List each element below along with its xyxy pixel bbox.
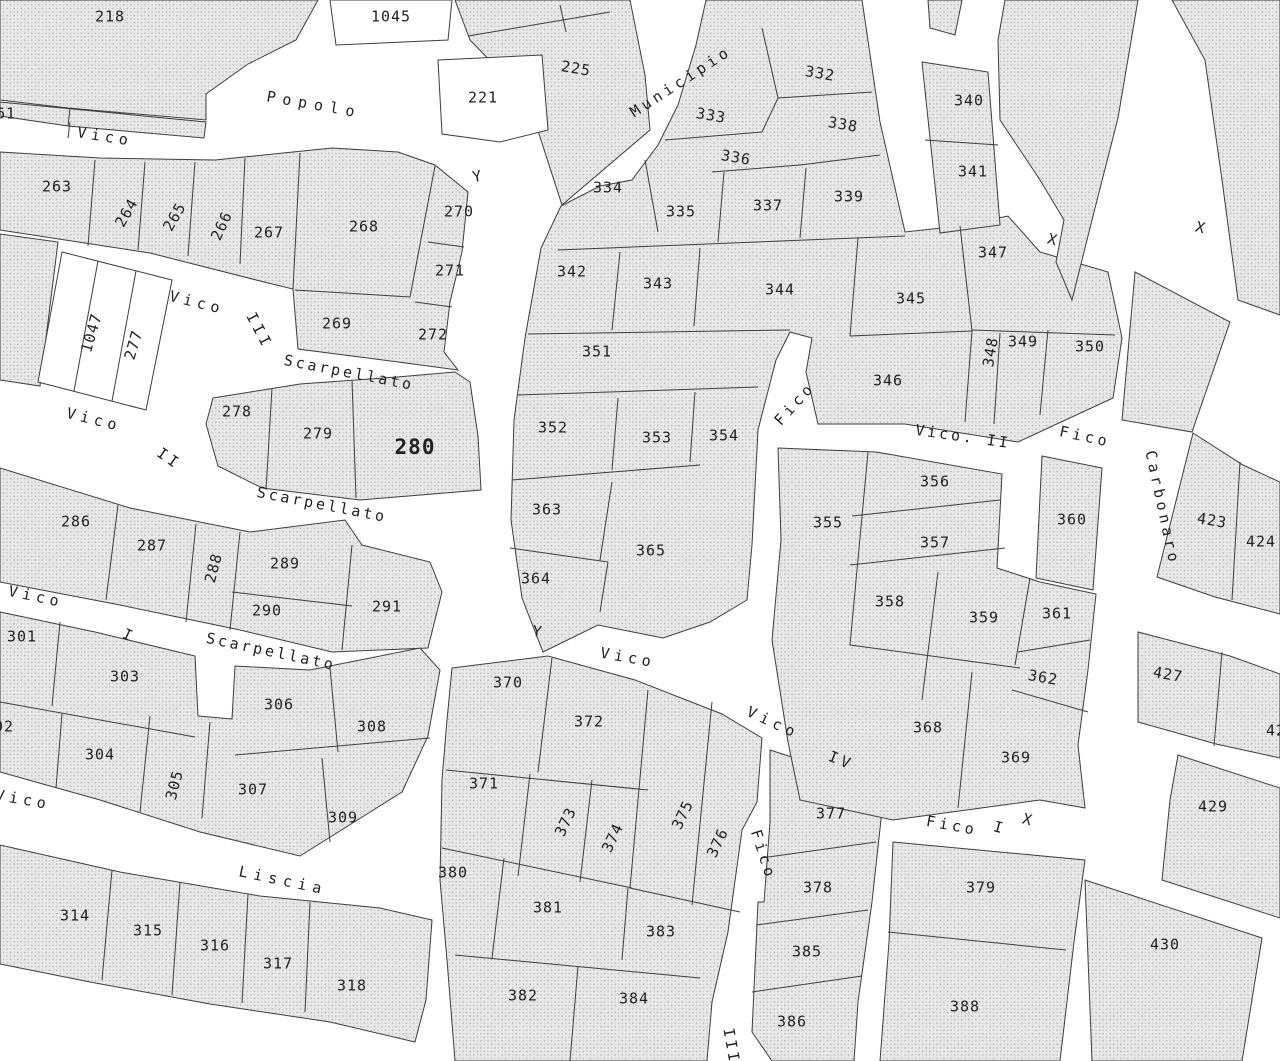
parcel-block bbox=[928, 0, 962, 35]
parcel-number-label: 370 bbox=[493, 674, 523, 692]
street-name-label: I bbox=[991, 817, 1006, 837]
street-name-label: III bbox=[242, 309, 276, 352]
parcel-number-label: 380 bbox=[438, 864, 468, 882]
parcel-number-label: 306 bbox=[264, 696, 294, 714]
parcel-number-label: 350 bbox=[1075, 338, 1105, 356]
parcel-number-label: 344 bbox=[765, 281, 795, 299]
parcel-number-label: 267 bbox=[254, 224, 284, 242]
parcel-number-label: 280 bbox=[395, 435, 436, 459]
street-name-label: II bbox=[153, 444, 185, 474]
parcel-number-label: 343 bbox=[643, 275, 673, 293]
parcel-number-label: 363 bbox=[532, 501, 562, 519]
unhatched-parcel bbox=[38, 252, 172, 410]
parcel-block bbox=[1172, 0, 1280, 315]
parcel-number-label: 290 bbox=[252, 602, 282, 620]
parcel-number-label: 429 bbox=[1198, 798, 1228, 816]
parcel-number-label: 386 bbox=[777, 1013, 807, 1031]
parcel-number-label: 377 bbox=[816, 805, 846, 823]
parcel-number-label: 382 bbox=[508, 987, 538, 1005]
parcel-number-label: 271 bbox=[435, 262, 465, 280]
parcel-number-label: 365 bbox=[636, 542, 666, 560]
parcel-number-label: 272 bbox=[418, 326, 448, 344]
parcel-number-label: 42 bbox=[1266, 722, 1280, 740]
street-name-label: Liscia bbox=[237, 862, 329, 898]
parcel-number-label: 381 bbox=[533, 899, 563, 917]
parcel-number-label: 289 bbox=[270, 555, 300, 573]
parcel-block bbox=[1162, 755, 1280, 918]
parcel-number-label: 268 bbox=[349, 218, 379, 236]
parcel-number-label: 384 bbox=[619, 990, 649, 1008]
parcel-number-label: 218 bbox=[95, 8, 125, 26]
parcel-number-label: 361 bbox=[1042, 605, 1072, 623]
parcel-number-label: 318 bbox=[337, 977, 367, 995]
street-name-label: Popolo bbox=[265, 87, 363, 121]
parcel-number-label: 291 bbox=[372, 598, 402, 616]
parcel-number-label: 354 bbox=[709, 427, 739, 445]
parcel-number-label: 287 bbox=[137, 537, 167, 555]
parcel-number-label: 304 bbox=[85, 746, 115, 764]
parcel-blocks-layer bbox=[0, 0, 1280, 1061]
parcel-number-label: 347 bbox=[978, 244, 1008, 262]
survey-mark-x-icon: X bbox=[1045, 230, 1058, 250]
street-name-label: Fico bbox=[771, 378, 819, 429]
parcel-number-label: 61 bbox=[0, 105, 16, 123]
parcel-number-label: 307 bbox=[238, 781, 268, 799]
parcel-number-label: 1045 bbox=[371, 8, 411, 26]
parcel-number-label: 221 bbox=[468, 89, 498, 107]
cadastral-map-svg[interactable]: 2181045225221613323333383363343353373393… bbox=[0, 0, 1280, 1061]
street-name-label: Vico bbox=[65, 404, 124, 435]
parcel-number-label: 351 bbox=[582, 343, 612, 361]
parcel-number-label: 430 bbox=[1150, 936, 1180, 954]
parcel-number-label: 383 bbox=[646, 923, 676, 941]
street-name-label: III bbox=[719, 1027, 743, 1061]
parcel-number-label: 316 bbox=[200, 937, 230, 955]
survey-mark-y-icon: Y bbox=[471, 167, 483, 186]
parcel-number-label: 279 bbox=[303, 425, 333, 443]
parcel-number-label: 314 bbox=[60, 907, 90, 925]
parcel-number-label: 358 bbox=[875, 593, 905, 611]
parcel-number-label: 342 bbox=[557, 263, 587, 281]
parcel-number-label: 278 bbox=[222, 403, 252, 421]
survey-mark-x-icon: X bbox=[1193, 218, 1206, 238]
parcel-number-label: 357 bbox=[920, 534, 950, 552]
parcel-number-label: 269 bbox=[322, 315, 352, 333]
street-name-label: Fico bbox=[1058, 422, 1113, 450]
parcel-number-label: 346 bbox=[873, 372, 903, 390]
parcel-block bbox=[206, 372, 481, 500]
parcel-number-label: 341 bbox=[958, 163, 988, 181]
parcel-number-label: 359 bbox=[969, 609, 999, 627]
parcel-number-label: 424 bbox=[1246, 533, 1276, 551]
parcel-number-label: 308 bbox=[357, 718, 387, 736]
parcel-number-label: 371 bbox=[469, 775, 499, 793]
parcel-number-label: 301 bbox=[7, 628, 37, 646]
parcel-block bbox=[1122, 272, 1230, 432]
street-name-label: Fico bbox=[925, 812, 979, 839]
parcel-number-label: 356 bbox=[920, 473, 950, 491]
parcel-number-label: 355 bbox=[813, 514, 843, 532]
parcel-block bbox=[880, 842, 1085, 1061]
parcel-number-label: 378 bbox=[803, 879, 833, 897]
parcel-number-label: 337 bbox=[753, 197, 783, 215]
parcel-number-label: 368 bbox=[913, 719, 943, 737]
parcel-number-label: 349 bbox=[1008, 333, 1038, 351]
parcel-number-label: 286 bbox=[61, 513, 91, 531]
parcel-number-label: 334 bbox=[593, 179, 623, 197]
parcel-number-label: 339 bbox=[834, 188, 864, 206]
parcel-number-label: 388 bbox=[950, 998, 980, 1016]
parcel-block bbox=[1138, 632, 1280, 758]
parcel-number-label: 270 bbox=[444, 203, 474, 221]
parcel-number-label: 02 bbox=[0, 718, 14, 736]
parcel-number-label: 340 bbox=[954, 92, 984, 110]
street-name-label: Vico bbox=[599, 644, 657, 671]
parcel-number-label: 309 bbox=[328, 809, 358, 827]
parcel-number-label: 335 bbox=[666, 203, 696, 221]
parcel-number-label: 379 bbox=[966, 879, 996, 897]
parcel-number-label: 372 bbox=[574, 713, 604, 731]
street-name-label: Vico bbox=[0, 786, 52, 813]
parcel-block bbox=[1085, 880, 1262, 1061]
parcel-number-label: 317 bbox=[263, 955, 293, 973]
parcel-number-label: 303 bbox=[110, 668, 140, 686]
parcel-number-label: 360 bbox=[1057, 511, 1087, 529]
parcel-number-label: 369 bbox=[1001, 749, 1031, 767]
street-name-label: Vico bbox=[168, 287, 227, 318]
parcel-number-label: 263 bbox=[42, 178, 72, 196]
parcel-number-label: 352 bbox=[538, 419, 568, 437]
survey-mark-x-icon: X bbox=[1020, 810, 1033, 830]
parcel-block bbox=[922, 62, 1000, 233]
map-viewport[interactable]: 2181045225221613323333383363343353373393… bbox=[0, 0, 1280, 1061]
parcel-number-label: 353 bbox=[642, 429, 672, 447]
parcel-number-label: 345 bbox=[896, 290, 926, 308]
parcel-number-label: 364 bbox=[521, 570, 551, 588]
parcel-number-label: 385 bbox=[792, 943, 822, 961]
parcel-number-label: 315 bbox=[133, 922, 163, 940]
